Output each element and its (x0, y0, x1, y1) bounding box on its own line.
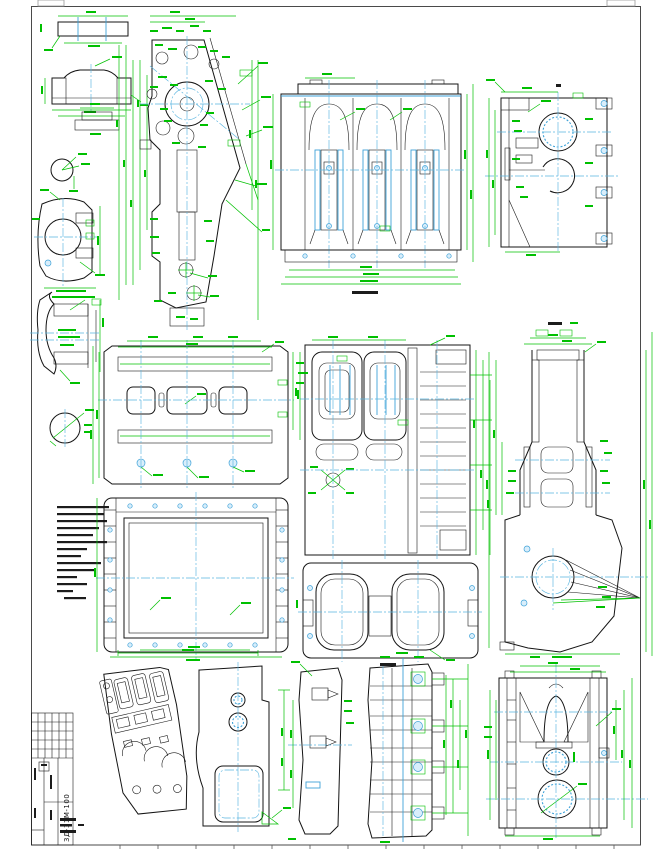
sheet-top-tab-left (38, 0, 64, 6)
drawing-page: 3Д-31М-100 (0, 0, 670, 853)
sheet-frame (0, 0, 670, 853)
drawing-sheet: 3Д-31М-100 (0, 0, 670, 853)
sheet-top-tab-right (607, 0, 635, 6)
drawing-number: 3Д-31М-100 (63, 794, 71, 842)
